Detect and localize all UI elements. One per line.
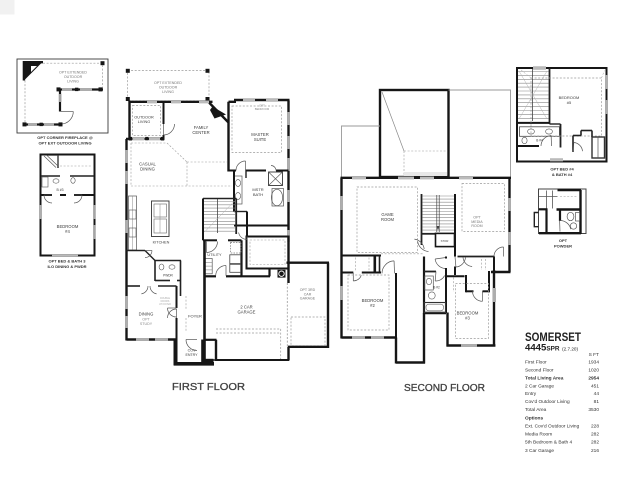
svg-text:SECOND FLOOR: SECOND FLOOR xyxy=(404,383,485,394)
svg-text:OPT: OPT xyxy=(559,238,568,243)
svg-text:81: 81 xyxy=(594,399,600,405)
svg-text:Ext. Cov'd Outdoor Living: Ext. Cov'd Outdoor Living xyxy=(525,424,580,430)
svg-text:AT FOYER: AT FOYER xyxy=(159,303,171,306)
svg-text:SUITE: SUITE xyxy=(254,137,267,142)
svg-text:DINING: DINING xyxy=(139,312,154,317)
svg-text:5th Bedroom & Bath 4: 5th Bedroom & Bath 4 xyxy=(525,440,573,446)
svg-text:216: 216 xyxy=(591,448,599,454)
svg-text:OUTDOOR: OUTDOOR xyxy=(64,75,83,79)
svg-text:OUTDOOR: OUTDOOR xyxy=(134,116,154,120)
svg-text:CENTER: CENTER xyxy=(192,130,209,135)
svg-text:PWDR: PWDR xyxy=(163,274,173,278)
svg-text:LIVING: LIVING xyxy=(162,90,174,94)
svg-text:OPT EXTENDED: OPT EXTENDED xyxy=(59,71,87,75)
svg-text:2 Car Garage: 2 Car Garage xyxy=(525,383,554,389)
svg-text:Cov'd Outdoor Living: Cov'd Outdoor Living xyxy=(525,399,570,405)
svg-text:Total Area: Total Area xyxy=(525,407,547,413)
svg-text:ROOM: ROOM xyxy=(381,217,395,222)
svg-text:KITCHEN: KITCHEN xyxy=(153,241,170,245)
svg-text:FOYER: FOYER xyxy=(188,314,202,319)
svg-text:1934: 1934 xyxy=(588,360,599,366)
svg-text:OUTDOOR: OUTDOOR xyxy=(159,86,178,90)
svg-text:451: 451 xyxy=(591,383,599,389)
svg-text:Options: Options xyxy=(525,416,543,422)
svg-text:LIVING: LIVING xyxy=(67,80,79,84)
svg-text:Total Living Area: Total Living Area xyxy=(525,375,564,381)
svg-text:DINING: DINING xyxy=(140,166,155,171)
svg-text:OPT CORNER FIREPLACE @: OPT CORNER FIREPLACE @ xyxy=(37,135,93,140)
svg-text:S FT: S FT xyxy=(589,352,599,358)
svg-text:228: 228 xyxy=(591,424,599,430)
svg-text:B #2: B #2 xyxy=(433,286,440,290)
svg-text:OPT BED #4: OPT BED #4 xyxy=(550,167,574,172)
svg-text:OPT EXT OUTDOOR LIVING: OPT EXT OUTDOOR LIVING xyxy=(38,141,91,146)
svg-text:282: 282 xyxy=(591,440,599,446)
svg-text:OPT EXTENDED: OPT EXTENDED xyxy=(154,81,182,85)
svg-text:B #3: B #3 xyxy=(57,188,64,192)
svg-text:OPT BED & BATH 3: OPT BED & BATH 3 xyxy=(48,259,86,264)
svg-text:ENTRY: ENTRY xyxy=(185,353,198,357)
svg-text:BATH: BATH xyxy=(253,192,263,197)
svg-text:ILO DINING & PWDR: ILO DINING & PWDR xyxy=(47,264,86,269)
svg-text:#2: #2 xyxy=(370,303,375,308)
svg-text:#5: #5 xyxy=(567,100,572,105)
svg-text:Second Floor: Second Floor xyxy=(525,367,554,373)
svg-text:Media Room: Media Room xyxy=(525,432,552,438)
svg-text:FIRST FLOOR: FIRST FLOOR xyxy=(172,382,245,393)
svg-text:ROOM: ROOM xyxy=(471,224,482,228)
svg-text:GARAGE: GARAGE xyxy=(238,309,256,314)
svg-text:UTILITY: UTILITY xyxy=(207,253,222,257)
svg-text:Entry: Entry xyxy=(525,391,537,397)
svg-text:3530: 3530 xyxy=(588,407,599,413)
svg-text:STOR: STOR xyxy=(441,239,449,243)
svg-text:First Floor: First Floor xyxy=(525,360,547,366)
svg-text:2954: 2954 xyxy=(588,375,599,381)
svg-text:282: 282 xyxy=(591,432,599,438)
svg-text:BEDROOM: BEDROOM xyxy=(255,107,270,111)
svg-text:& BATH #4: & BATH #4 xyxy=(552,172,573,177)
svg-text:3 Car Garage: 3 Car Garage xyxy=(525,448,554,454)
svg-text:#3: #3 xyxy=(465,315,470,320)
svg-text:OPT: OPT xyxy=(142,317,150,321)
svg-text:1020: 1020 xyxy=(588,367,599,373)
svg-text:LIVING: LIVING xyxy=(138,120,150,124)
svg-text:STUDY: STUDY xyxy=(140,322,153,326)
svg-text:44: 44 xyxy=(594,391,600,397)
svg-text:#4: #4 xyxy=(65,229,70,234)
svg-text:GARAGE: GARAGE xyxy=(300,297,316,301)
svg-text:POWDER: POWDER xyxy=(554,244,572,249)
